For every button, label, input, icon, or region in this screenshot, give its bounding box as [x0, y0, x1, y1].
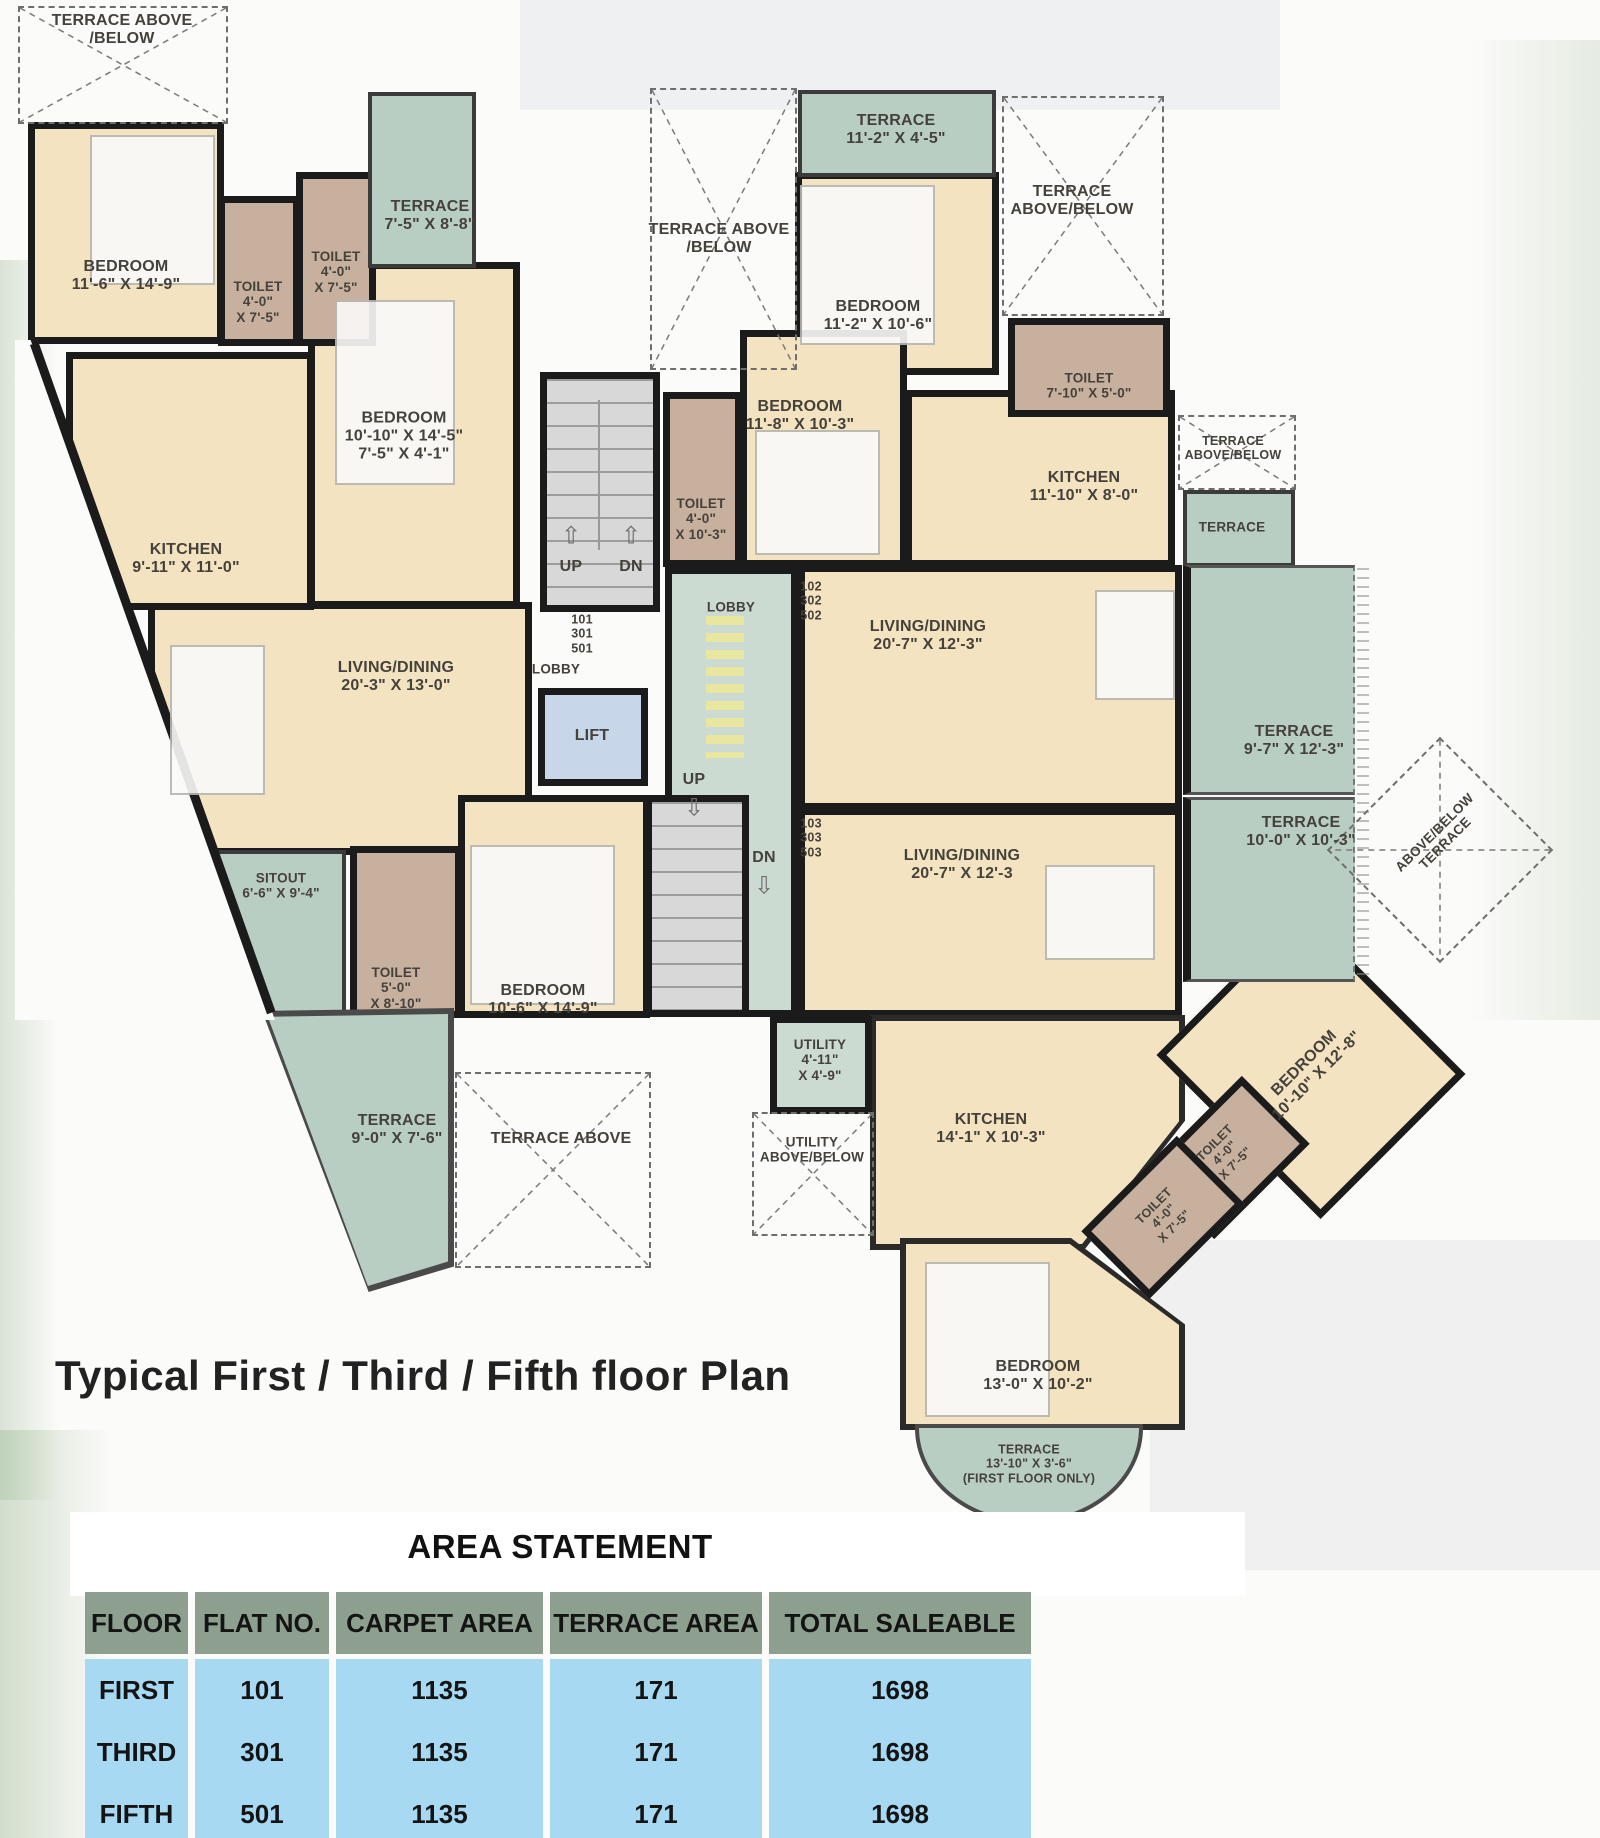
- furniture-bed: [755, 430, 880, 555]
- label-up-upper-stairs: UP: [560, 558, 583, 576]
- page-title: Typical First / Third / Fifth floor Plan: [55, 1352, 955, 1400]
- label-bedroom-3: BEDROOM 11'-2" X 10'-6": [824, 298, 933, 334]
- label-bedroom-5: BEDROOM 10'-6" X 14'-9": [488, 982, 597, 1018]
- label-terrace-above-top-right: TERRACE ABOVE/BELOW: [1010, 183, 1133, 219]
- table-header-row: FLOOR FLAT NO. CARPET AREA TERRACE AREA …: [85, 1592, 1035, 1654]
- label-utility: UTILITY 4'-11" X 4'-9": [794, 1037, 846, 1083]
- cell-total-saleable: 1698: [769, 1659, 1031, 1721]
- label-terrace-1: TERRACE 7'-5" X 8'-8": [384, 198, 475, 234]
- furniture-dining-table: [1095, 590, 1175, 700]
- label-toilet-4: TOILET 5'-0" X 8'-10": [371, 965, 422, 1011]
- cell-floor: FIFTH: [85, 1783, 188, 1838]
- label-terrace-above-small: TERRACE ABOVE/BELOW: [1185, 434, 1282, 463]
- label-dn-lobby: DN: [752, 849, 776, 867]
- area-statement-title: AREA STATEMENT: [85, 1528, 1035, 1566]
- label-lift: LIFT: [575, 727, 610, 745]
- label-terrace-above-top-left: TERRACE ABOVE /BELOW: [52, 12, 193, 48]
- floor-plan-page: TERRACE ABOVE /BELOW BEDROOM 11'-6" X 14…: [0, 0, 1600, 1838]
- dashed-cross: [754, 1114, 872, 1234]
- table-row-fifth: FIFTH 501 1135 171 1698: [85, 1783, 1035, 1838]
- cell-total-saleable: 1698: [769, 1721, 1031, 1783]
- down-arrow-icon: ⇩: [684, 794, 704, 823]
- label-bedroom-2: BEDROOM 10'-10" X 14'-5" 7'-5" X 4'-1": [345, 410, 464, 465]
- label-flat-numbers-102: 102 302 502: [800, 580, 821, 623]
- cell-terrace-area: 171: [550, 1783, 762, 1838]
- label-sitout: SITOUT 6'-6" X 9'-4": [242, 871, 319, 902]
- label-kitchen-3: KITCHEN 14'-1" X 10'-3": [936, 1111, 1045, 1147]
- cell-terrace-area: 171: [550, 1659, 762, 1721]
- down-arrow-icon: ⇩: [754, 872, 774, 901]
- cell-floor: FIRST: [85, 1659, 188, 1721]
- cell-terrace-area: 171: [550, 1721, 762, 1783]
- label-utility-above: UTILITY ABOVE/BELOW: [760, 1135, 864, 1166]
- column-header-carpet-area: CARPET AREA: [336, 1592, 543, 1654]
- label-terrace-5: TERRACE 13'-10" X 3'-6" (FIRST FLOOR ONL…: [963, 1443, 1095, 1486]
- label-living-dining-2: LIVING/DINING 20'-7" X 12'-3": [870, 618, 986, 654]
- label-bedroom-4: BEDROOM 11'-8" X 10'-3": [746, 398, 855, 434]
- label-terrace-small: TERRACE: [1199, 519, 1266, 534]
- dashed-utility-above: [752, 1112, 874, 1236]
- area-statement-table: FLOOR FLAT NO. CARPET AREA TERRACE AREA …: [85, 1592, 1035, 1838]
- label-up-lobby: UP: [683, 771, 706, 789]
- table-row-third: THIRD 301 1135 171 1698: [85, 1721, 1035, 1783]
- cell-carpet-area: 1135: [336, 1659, 543, 1721]
- room-terrace-3: [1183, 565, 1355, 795]
- label-toilet-mid: TOILET 4'-0" X 10'-3": [676, 496, 727, 542]
- label-toilet-3: TOILET 7'-10" X 5'-0": [1046, 371, 1131, 402]
- label-bedroom-1: BEDROOM 11'-6" X 14'-9": [72, 258, 181, 294]
- room-toilet-3: [1008, 318, 1170, 417]
- label-flat-numbers-101: 101 301 501: [571, 613, 592, 656]
- furniture-dining-table: [170, 645, 265, 795]
- label-bedroom-7: BEDROOM 13'-0" X 10'-2": [983, 1358, 1092, 1394]
- column-header-flat-no: FLAT NO.: [195, 1592, 329, 1654]
- lobby-steps: [706, 616, 744, 758]
- up-arrow-icon: ⇧: [561, 522, 581, 551]
- dashed-terrace-above-bottom-left: [455, 1072, 651, 1268]
- label-kitchen-1: KITCHEN 9'-11" X 11'-0": [132, 541, 240, 577]
- label-dn-upper-stairs: DN: [619, 558, 643, 576]
- label-toilet-2: TOILET 4'-0" X 7'-5": [312, 249, 361, 295]
- room-terrace-bottom-left: [260, 1008, 454, 1292]
- cell-flat-no: 301: [195, 1721, 329, 1783]
- label-living-dining-3: LIVING/DINING 20'-7" X 12'-3: [904, 847, 1020, 883]
- cell-carpet-area: 1135: [336, 1783, 543, 1838]
- up-arrow-icon: ⇧: [621, 522, 641, 551]
- label-flat-numbers-103: 103 303 503: [800, 817, 821, 860]
- label-terrace-above-mid: TERRACE ABOVE /BELOW: [649, 221, 790, 257]
- room-terrace-1: [368, 92, 476, 268]
- label-terrace-3: TERRACE 9'-7" X 12'-3": [1244, 723, 1344, 759]
- staircase-lower: [645, 795, 749, 1017]
- label-lobby-2: LOBBY: [707, 599, 755, 614]
- column-header-total-saleable: TOTAL SALEABLE: [769, 1592, 1031, 1654]
- label-living-dining-1: LIVING/DINING 20'-3" X 13'-0": [338, 659, 454, 695]
- table-row-first: FIRST 101 1135 171 1698: [85, 1659, 1035, 1721]
- column-header-terrace-area: TERRACE AREA: [550, 1592, 762, 1654]
- dashed-cross: [457, 1074, 649, 1266]
- column-header-floor: FLOOR: [85, 1592, 188, 1654]
- cell-flat-no: 501: [195, 1783, 329, 1838]
- cell-carpet-area: 1135: [336, 1721, 543, 1783]
- label-terrace-above-bottom-left: TERRACE ABOVE: [491, 1130, 632, 1148]
- label-toilet-1: TOILET 4'-0" X 7'-5": [234, 279, 283, 325]
- cell-floor: THIRD: [85, 1721, 188, 1783]
- label-lobby-1: LOBBY: [532, 661, 580, 676]
- label-terrace-2: TERRACE 11'-2" X 4'-5": [846, 112, 945, 148]
- label-kitchen-2: KITCHEN 11'-10" X 8'-0": [1030, 469, 1139, 505]
- label-terrace-bottom-left: TERRACE 9'-0" X 7'-6": [351, 1112, 442, 1148]
- label-terrace-4: TERRACE 10'-0" X 10'-3": [1246, 814, 1355, 850]
- staircase-upper-divider: [598, 400, 600, 550]
- furniture-dining-table: [1045, 865, 1155, 960]
- cell-flat-no: 101: [195, 1659, 329, 1721]
- cell-total-saleable: 1698: [769, 1783, 1031, 1838]
- terrace-railing-hatch: [1357, 568, 1369, 980]
